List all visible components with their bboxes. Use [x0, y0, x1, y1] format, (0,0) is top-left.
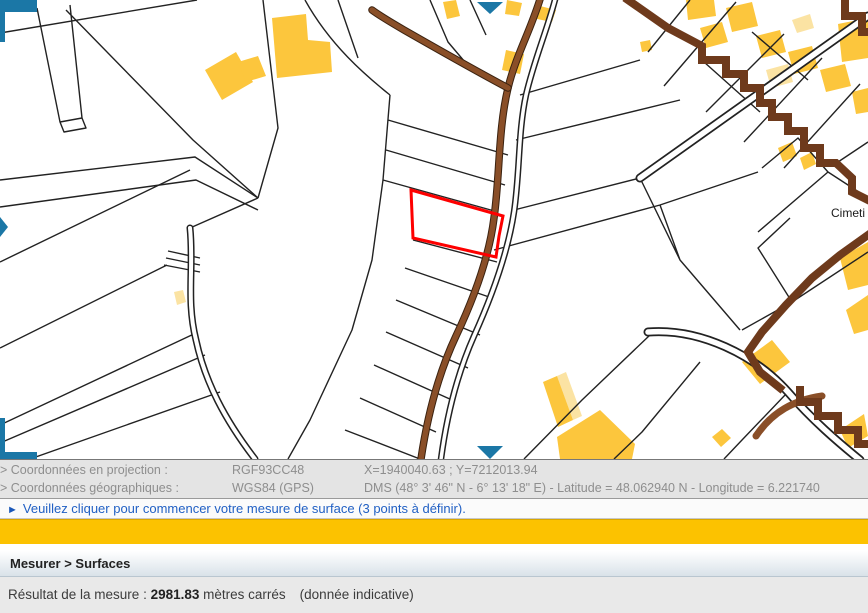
result-unit: mètres carrés	[199, 587, 285, 602]
breadcrumb-text: Mesurer > Surfaces	[10, 556, 130, 571]
play-arrow-icon: ►	[7, 504, 18, 516]
projection-system: RGF93CC48	[232, 461, 364, 479]
coordinates-panel: > Coordonnées en projection : RGF93CC48 …	[0, 460, 868, 499]
projection-value: X=1940040.63 ; Y=7212013.94	[364, 461, 868, 479]
map-viewport[interactable]: Cimeti	[0, 0, 868, 460]
brown-roads	[372, 0, 822, 459]
geographic-row: > Coordonnées géographiques : WGS84 (GPS…	[0, 479, 868, 497]
geographic-label: > Coordonnées géographiques :	[0, 479, 232, 497]
pan-left-arrow[interactable]	[0, 217, 8, 237]
projection-label: > Coordonnées en projection :	[0, 461, 232, 479]
geographic-value: DMS (48° 3' 46" N - 6° 13' 18" E) - Lati…	[364, 479, 868, 497]
pan-corner-bottom-left[interactable]	[0, 418, 37, 459]
pan-up-arrow[interactable]	[477, 2, 503, 14]
result-label: Résultat de la mesure :	[8, 587, 151, 602]
cadastral-map[interactable]: Cimeti	[0, 0, 868, 460]
cimetiere-label: Cimeti	[831, 206, 865, 220]
commune-boundary	[628, 0, 868, 444]
instruction-text: Veuillez cliquer pour commencer votre me…	[23, 501, 466, 516]
pan-down-arrow[interactable]	[477, 446, 503, 459]
measure-result-bar: Résultat de la mesure : 2981.83 mètres c…	[0, 577, 868, 613]
result-note: (donnée indicative)	[300, 587, 414, 602]
result-value: 2981.83	[151, 587, 200, 602]
geographic-system: WGS84 (GPS)	[232, 479, 364, 497]
instruction-bar: ►Veuillez cliquer pour commencer votre m…	[0, 499, 868, 519]
toolbar-strip	[0, 519, 868, 544]
pan-corner-top-left[interactable]	[0, 0, 37, 42]
cadastre-app: Cimeti > Coordonnées en projection : RGF…	[0, 0, 868, 613]
breadcrumb: Mesurer > Surfaces	[0, 550, 868, 577]
projection-row: > Coordonnées en projection : RGF93CC48 …	[0, 461, 868, 479]
